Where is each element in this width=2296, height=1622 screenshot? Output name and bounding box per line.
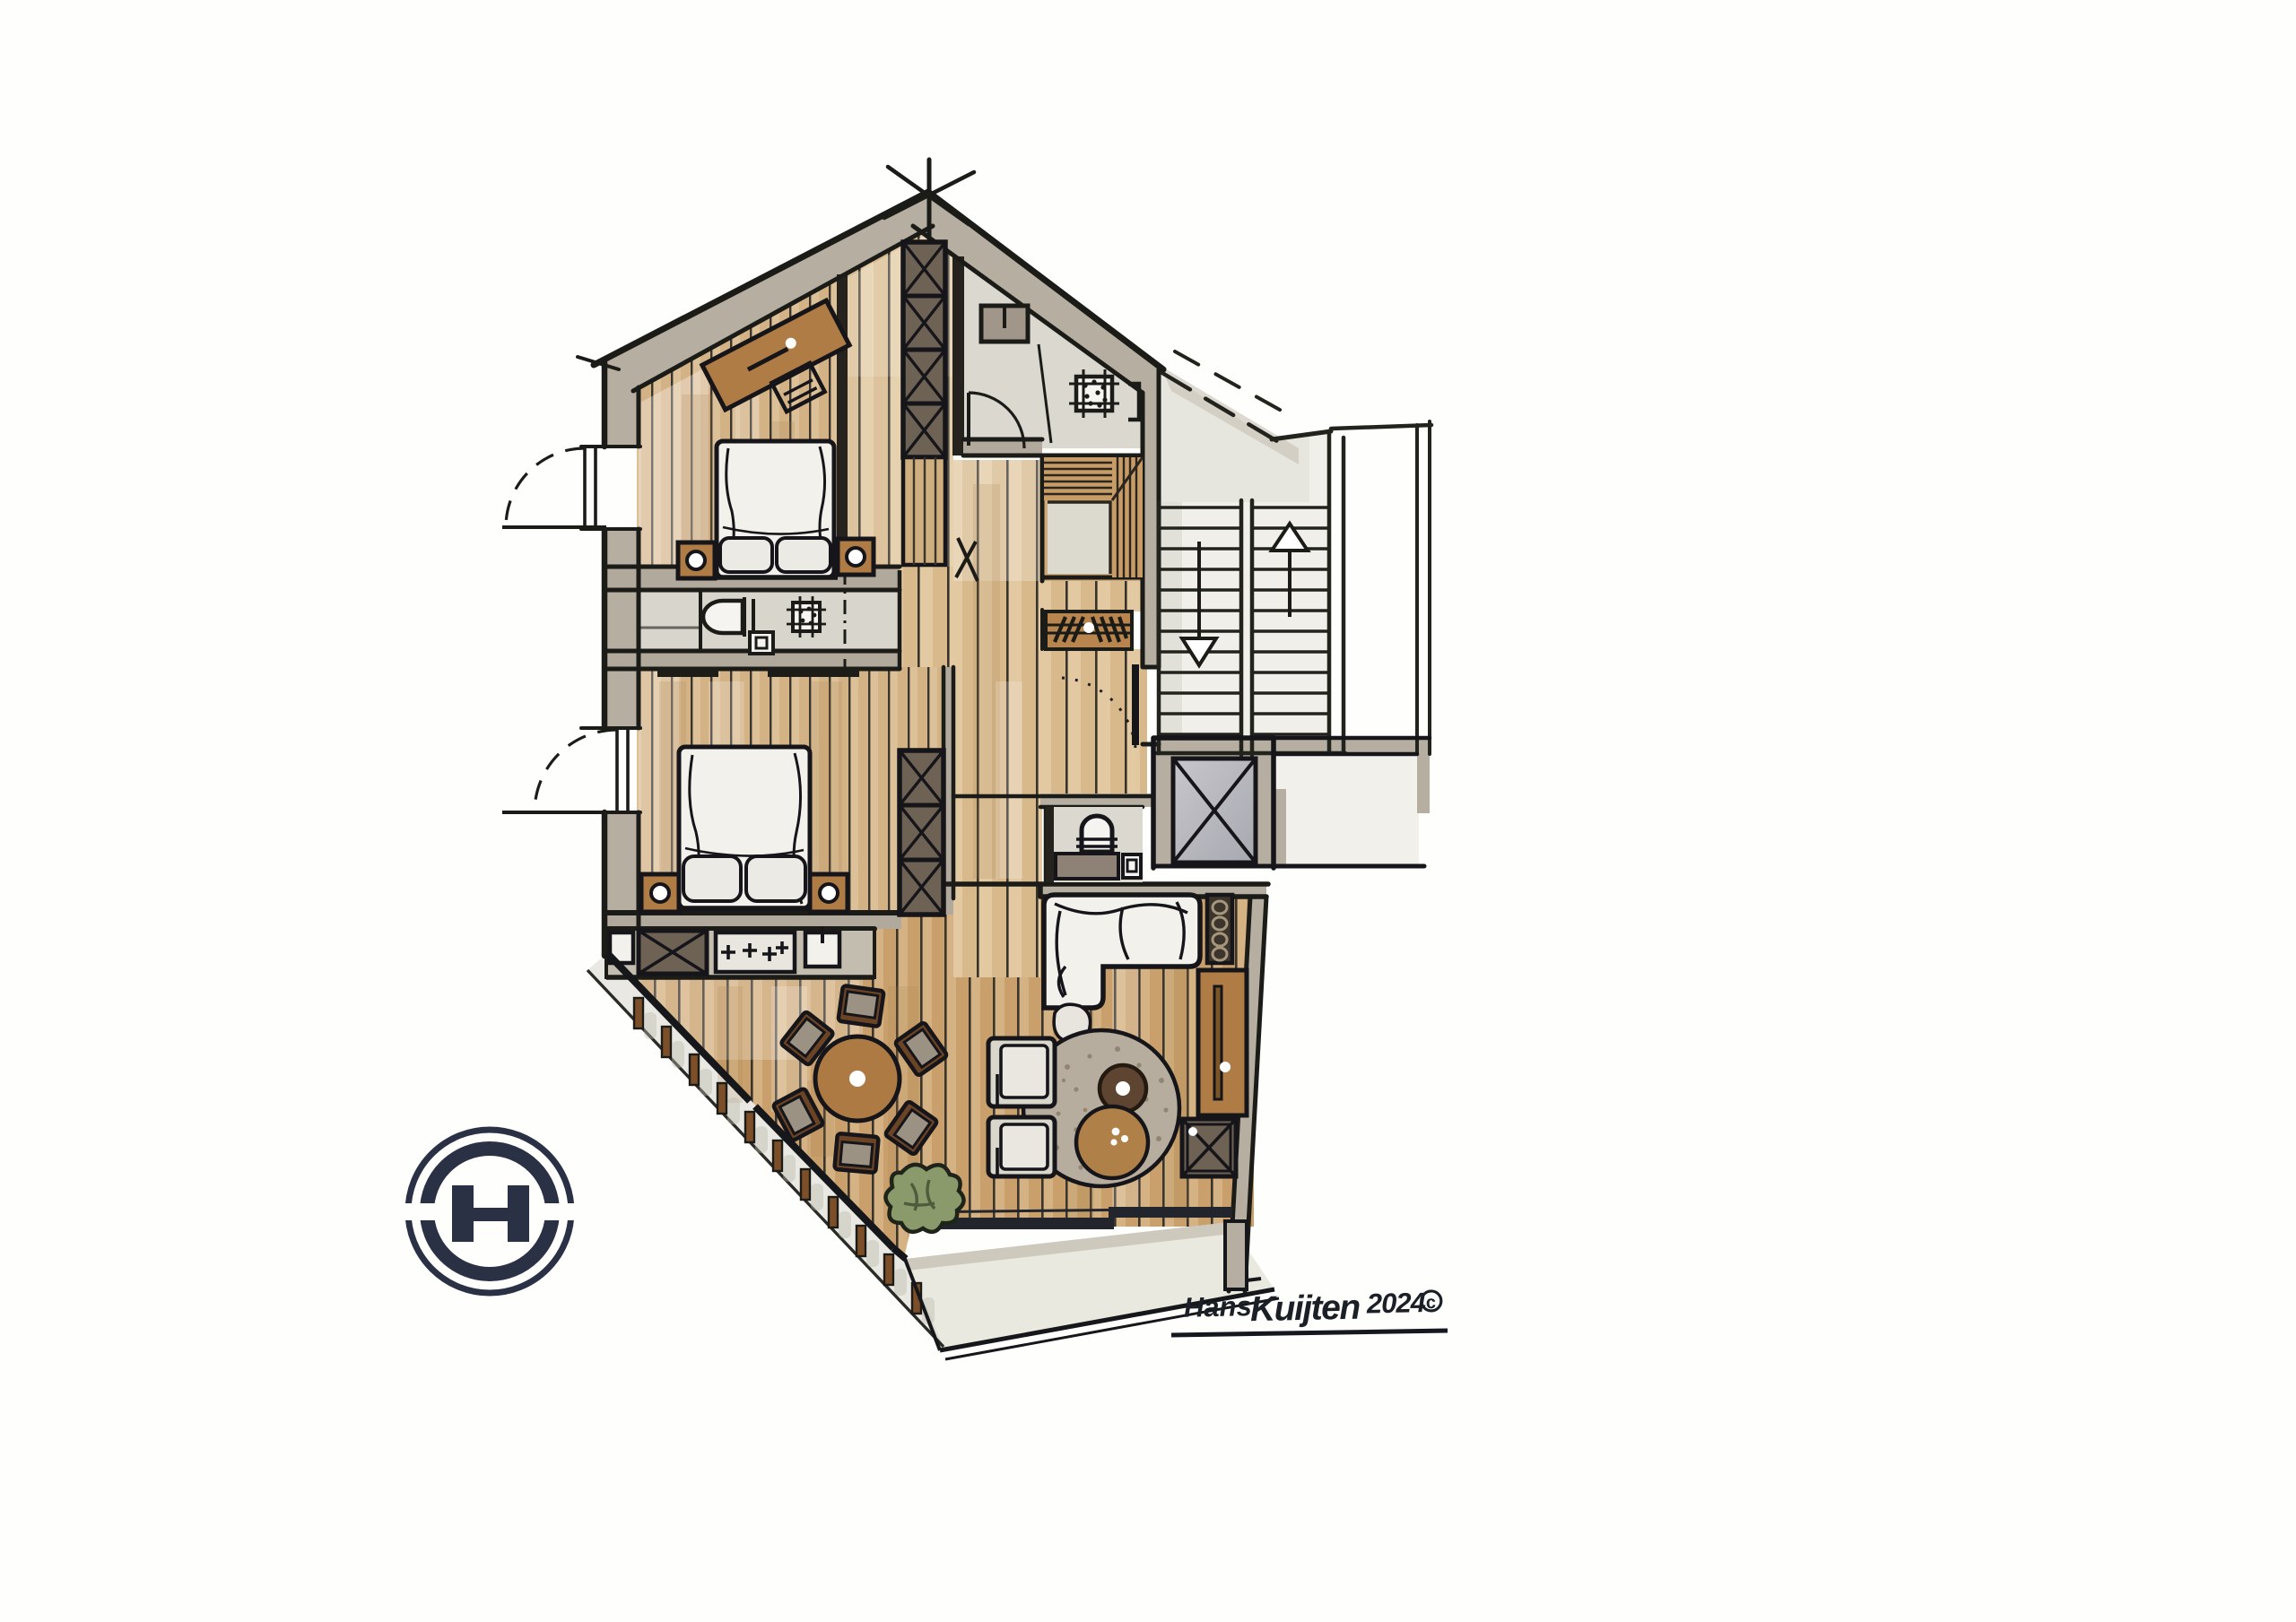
svg-text:2024: 2024 [1366, 1287, 1426, 1319]
svg-text:c: c [1426, 1293, 1437, 1313]
svg-text:Hans: Hans [1184, 1290, 1253, 1323]
svg-text:Kuijten: Kuijten [1250, 1288, 1361, 1330]
